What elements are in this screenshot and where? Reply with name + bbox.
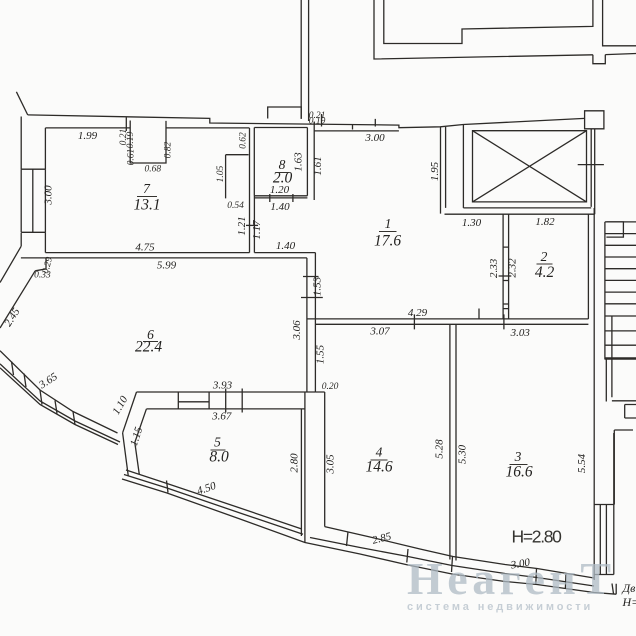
svg-text:4: 4 bbox=[376, 445, 383, 460]
svg-text:4.75: 4.75 bbox=[135, 242, 155, 254]
svg-text:14.6: 14.6 bbox=[365, 459, 392, 476]
svg-text:0.82: 0.82 bbox=[164, 141, 174, 158]
svg-text:2.33: 2.33 bbox=[488, 258, 500, 278]
svg-text:5: 5 bbox=[214, 435, 221, 450]
svg-text:1.30: 1.30 bbox=[462, 217, 482, 229]
svg-text:3.07: 3.07 bbox=[369, 325, 390, 337]
svg-text:8.0: 8.0 bbox=[209, 449, 229, 466]
svg-text:1.53: 1.53 bbox=[312, 276, 324, 296]
svg-text:3: 3 bbox=[514, 449, 522, 464]
svg-text:5.99: 5.99 bbox=[157, 260, 177, 272]
svg-text:0.19: 0.19 bbox=[126, 131, 136, 148]
svg-text:1.63: 1.63 bbox=[293, 152, 305, 172]
svg-text:3.00: 3.00 bbox=[43, 185, 55, 206]
svg-text:4.2: 4.2 bbox=[535, 264, 555, 281]
svg-text:5.28: 5.28 bbox=[434, 439, 446, 459]
svg-text:4.29: 4.29 bbox=[408, 307, 428, 319]
svg-text:2: 2 bbox=[541, 249, 548, 264]
svg-text:1.99: 1.99 bbox=[78, 130, 98, 142]
svg-text:НеагенТ: НеагенТ bbox=[407, 553, 616, 604]
svg-text:0.54: 0.54 bbox=[227, 201, 244, 211]
svg-text:3.03: 3.03 bbox=[510, 327, 531, 339]
svg-text:Н=: Н= bbox=[622, 595, 636, 609]
svg-text:1.61: 1.61 bbox=[312, 156, 324, 175]
svg-text:1.82: 1.82 bbox=[535, 216, 555, 228]
svg-text:1.05: 1.05 bbox=[216, 165, 226, 182]
svg-text:1.95: 1.95 bbox=[429, 161, 441, 181]
svg-text:0.68: 0.68 bbox=[144, 165, 161, 175]
svg-text:3.67: 3.67 bbox=[211, 411, 232, 423]
svg-text:1.17: 1.17 bbox=[251, 220, 263, 240]
svg-text:0.20: 0.20 bbox=[322, 382, 339, 392]
svg-text:5.54: 5.54 bbox=[576, 453, 588, 473]
svg-text:13.1: 13.1 bbox=[133, 197, 160, 214]
svg-text:система недвижимости: система недвижимости bbox=[407, 601, 593, 613]
svg-text:3.05: 3.05 bbox=[325, 454, 337, 475]
svg-text:2.80: 2.80 bbox=[289, 453, 301, 473]
svg-text:0.19: 0.19 bbox=[309, 117, 326, 127]
svg-text:1.40: 1.40 bbox=[270, 201, 290, 213]
svg-text:3.06: 3.06 bbox=[291, 320, 303, 341]
svg-text:0.62: 0.62 bbox=[239, 132, 249, 149]
svg-text:1.21: 1.21 bbox=[236, 216, 248, 235]
svg-text:1.55: 1.55 bbox=[315, 344, 327, 364]
svg-text:2.32: 2.32 bbox=[507, 258, 519, 278]
svg-text:Дв: Дв bbox=[622, 581, 636, 595]
svg-text:3.00: 3.00 bbox=[364, 132, 385, 144]
svg-text:16.6: 16.6 bbox=[505, 464, 532, 481]
svg-text:Н=2.80: Н=2.80 bbox=[512, 527, 563, 547]
svg-text:17.6: 17.6 bbox=[374, 233, 401, 250]
svg-text:3.93: 3.93 bbox=[212, 379, 233, 391]
svg-text:5.30: 5.30 bbox=[457, 444, 469, 464]
svg-text:1: 1 bbox=[385, 216, 392, 231]
svg-text:1.40: 1.40 bbox=[276, 240, 296, 252]
svg-text:0.61: 0.61 bbox=[127, 149, 137, 166]
